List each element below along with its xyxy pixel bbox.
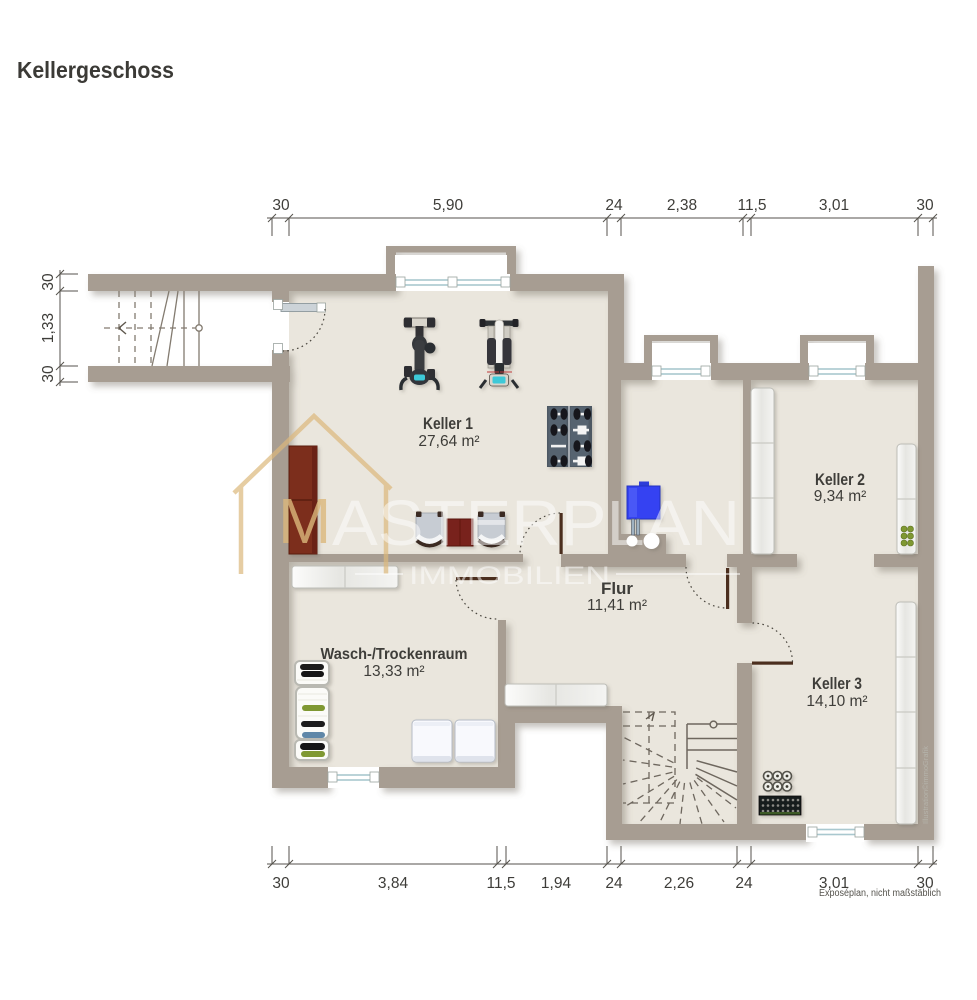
svg-text:30: 30 [272, 197, 290, 214]
svg-text:3,84: 3,84 [378, 875, 409, 892]
svg-text:Keller 3: Keller 3 [812, 674, 862, 693]
svg-text:30: 30 [40, 365, 57, 383]
svg-text:24: 24 [605, 875, 623, 892]
svg-text:24: 24 [735, 875, 753, 892]
svg-text:9,34 m²: 9,34 m² [814, 488, 867, 505]
svg-text:Exposéplan, nicht maßstäblich: Exposéplan, nicht maßstäblich [819, 888, 941, 899]
svg-text:30: 30 [916, 197, 934, 214]
svg-text:3,01: 3,01 [819, 197, 849, 214]
svg-text:11,5: 11,5 [486, 875, 515, 892]
svg-text:Illustration©immoGrafik: Illustration©immoGrafik [921, 746, 930, 824]
svg-text:13,33 m²: 13,33 m² [363, 663, 424, 680]
svg-text:27,64 m²: 27,64 m² [418, 433, 479, 450]
svg-text:30: 30 [40, 273, 57, 291]
svg-text:24: 24 [605, 197, 623, 214]
svg-text:Kellergeschoss: Kellergeschoss [17, 57, 174, 83]
svg-text:2,26: 2,26 [664, 875, 694, 892]
svg-text:30: 30 [272, 875, 290, 892]
svg-text:Keller 2: Keller 2 [815, 470, 865, 489]
svg-text:5,90: 5,90 [433, 197, 464, 214]
svg-text:IMMOBILIEN: IMMOBILIEN [409, 562, 610, 590]
svg-text:1,33: 1,33 [40, 313, 57, 343]
svg-text:Keller 1: Keller 1 [423, 414, 473, 433]
svg-text:1,94: 1,94 [541, 875, 572, 892]
svg-text:11,41 m²: 11,41 m² [587, 597, 647, 614]
svg-text:ASTERPLAN: ASTERPLAN [332, 487, 740, 559]
svg-text:2,38: 2,38 [667, 197, 697, 214]
svg-text:Wasch-/Trockenraum: Wasch-/Trockenraum [321, 646, 468, 663]
svg-text:11,5: 11,5 [737, 197, 766, 214]
svg-text:14,10 m²: 14,10 m² [806, 693, 867, 710]
svg-text:M: M [278, 485, 331, 557]
svg-text:Flur: Flur [601, 579, 633, 598]
